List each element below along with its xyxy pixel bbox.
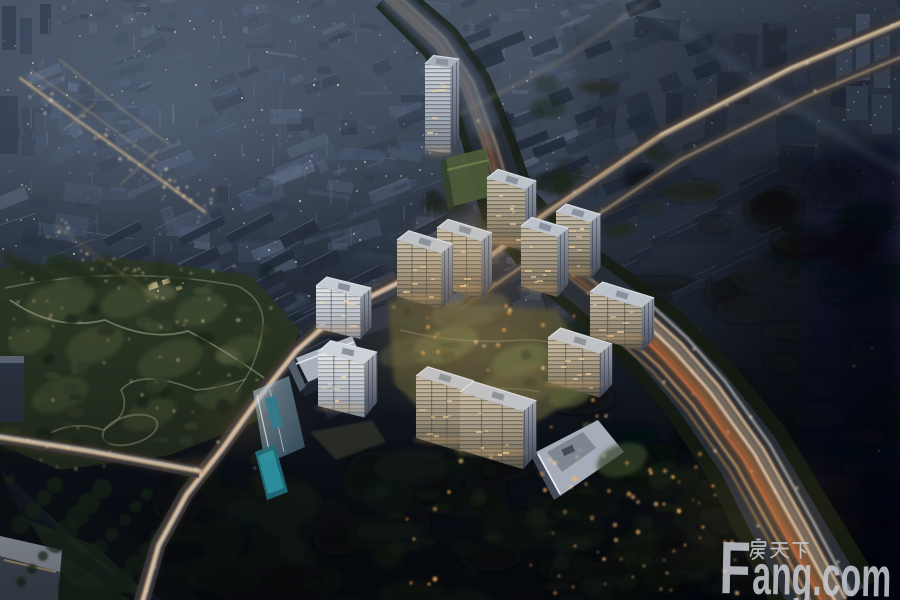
- svg-text:ang.com: ang.com: [752, 543, 892, 600]
- svg-text:F: F: [719, 526, 752, 600]
